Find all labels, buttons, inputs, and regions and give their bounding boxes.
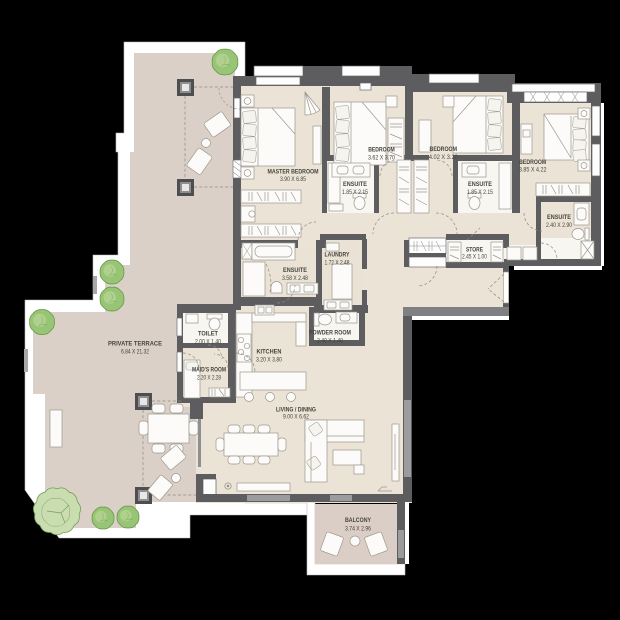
- svg-text:1.85 X 2.15: 1.85 X 2.15: [467, 189, 493, 196]
- svg-text:TOILET: TOILET: [198, 331, 219, 338]
- svg-text:2.20 X 2.28: 2.20 X 2.28: [197, 375, 221, 382]
- svg-text:1.85 X 2.15: 1.85 X 2.15: [342, 189, 368, 196]
- svg-text:ENSUITE: ENSUITE: [343, 181, 367, 188]
- svg-text:BEDROOM: BEDROOM: [368, 146, 395, 153]
- svg-text:ENSUITE: ENSUITE: [283, 267, 307, 274]
- svg-text:BALCONY: BALCONY: [345, 517, 371, 524]
- svg-text:2.40 X 1.48: 2.40 X 1.48: [317, 338, 343, 345]
- svg-text:STORE: STORE: [466, 247, 483, 254]
- svg-text:ENSUITE: ENSUITE: [547, 214, 571, 221]
- svg-text:LAUNDRY: LAUNDRY: [325, 251, 350, 258]
- svg-text:KITCHEN: KITCHEN: [257, 349, 282, 356]
- svg-text:BEDROOM: BEDROOM: [430, 146, 458, 153]
- svg-text:BEDROOM: BEDROOM: [519, 159, 546, 166]
- svg-text:MASTER BEDROOM: MASTER BEDROOM: [268, 169, 319, 176]
- svg-text:2.45 X 1.00: 2.45 X 1.00: [462, 254, 487, 261]
- svg-text:1.72 X 2.48: 1.72 X 2.48: [325, 259, 350, 266]
- svg-text:ENSUITE: ENSUITE: [468, 181, 492, 188]
- svg-text:3.20 X 3.80: 3.20 X 3.80: [256, 357, 282, 364]
- svg-text:POWDER ROOM: POWDER ROOM: [309, 329, 351, 336]
- svg-text:2.00 X 1.40: 2.00 X 1.40: [195, 339, 221, 346]
- svg-text:MAID'S ROOM: MAID'S ROOM: [192, 366, 226, 373]
- svg-text:PRIVATE TERRACE: PRIVATE TERRACE: [108, 341, 162, 348]
- svg-text:3.58 X 2.48: 3.58 X 2.48: [282, 275, 308, 282]
- svg-text:2.40 X 2.90: 2.40 X 2.90: [546, 222, 572, 229]
- svg-text:6.84 X 21.32: 6.84 X 21.32: [121, 349, 149, 356]
- svg-text:3.62 X 3.70: 3.62 X 3.70: [368, 154, 395, 161]
- svg-text:3.90 X 6.85: 3.90 X 6.85: [280, 176, 306, 183]
- svg-text:9.00 X 6.62: 9.00 X 6.62: [283, 414, 309, 421]
- svg-text:LIVING / DINING: LIVING / DINING: [276, 407, 316, 414]
- svg-text:4.02 X 3.20: 4.02 X 3.20: [429, 154, 458, 161]
- svg-text:3.74 X 2.96: 3.74 X 2.96: [345, 526, 371, 533]
- svg-text:3.85 X 4.22: 3.85 X 4.22: [519, 167, 547, 174]
